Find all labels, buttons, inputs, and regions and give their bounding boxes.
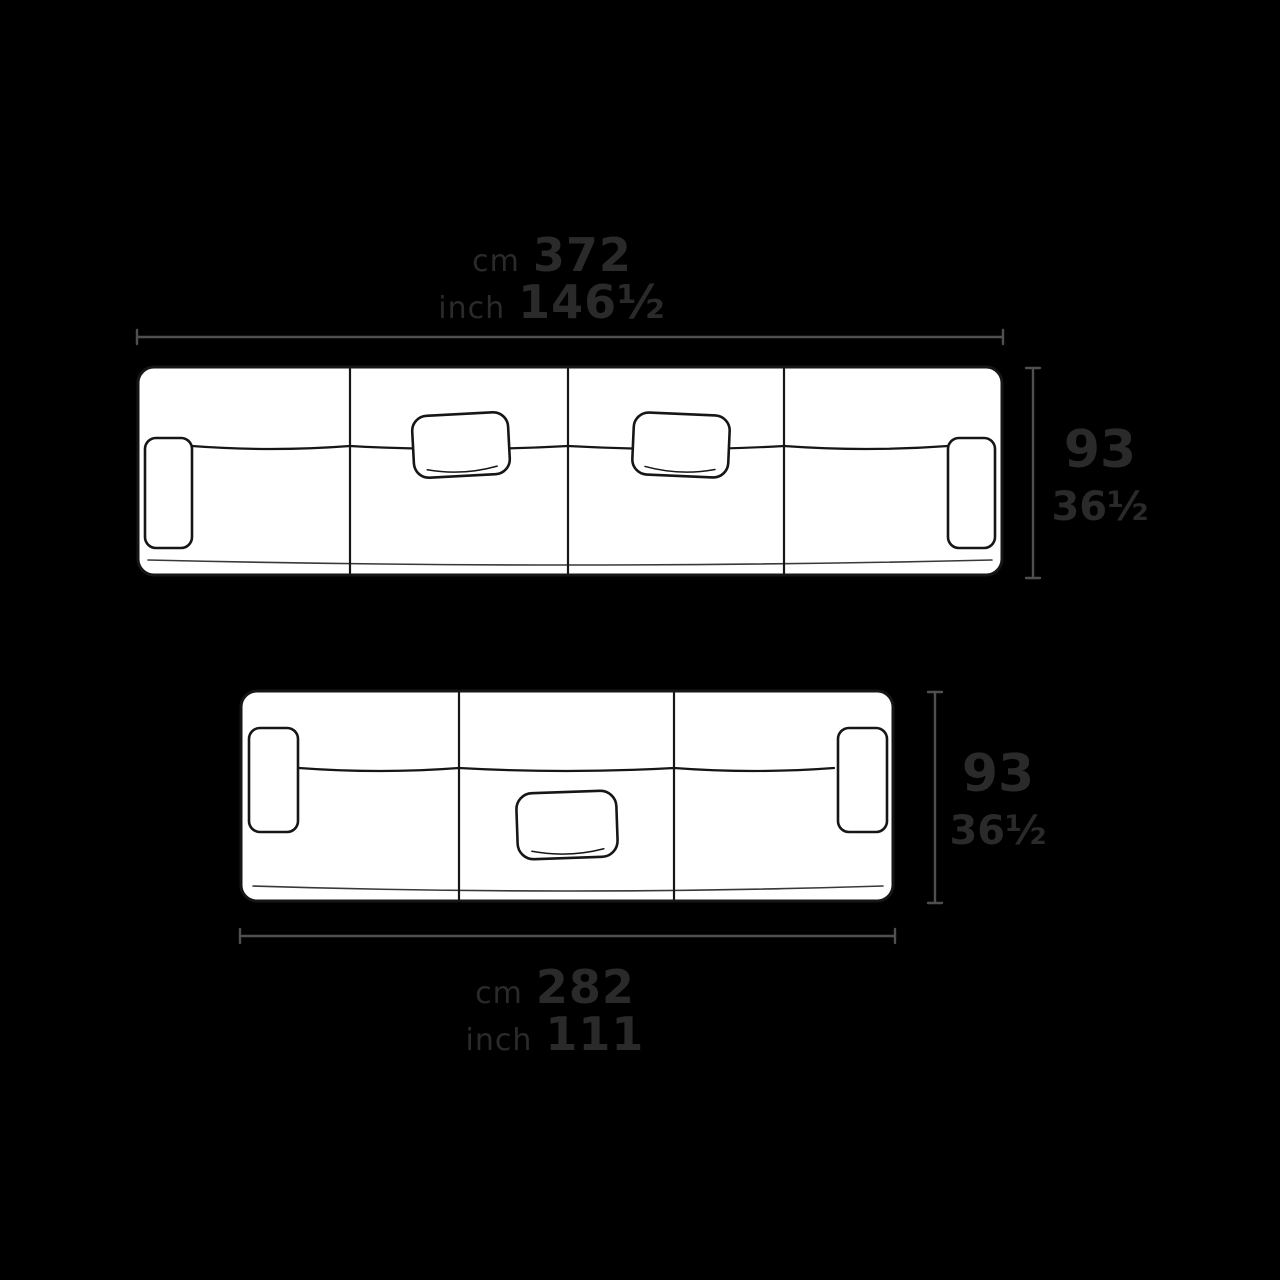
large-width-inch-value: 146½	[518, 279, 666, 326]
sofa-large-armrest-right	[948, 438, 995, 548]
sofa-large-top-view	[134, 362, 1006, 582]
sofa-large-body	[138, 367, 1002, 575]
sofa-large-armrest-left	[145, 438, 192, 548]
large-depth-inch-value: 36½	[1051, 487, 1148, 528]
large-depth-label: 93 36½	[1048, 424, 1152, 528]
small-width-inch-value: 111	[545, 1011, 644, 1058]
pillow-icon	[632, 412, 731, 478]
large-width-dimension-line	[137, 330, 1003, 344]
large-width-cm-unit: cm	[472, 247, 520, 278]
pillow-icon	[411, 412, 510, 479]
large-depth-cm-value: 93	[1064, 424, 1136, 477]
small-depth-cm-value: 93	[962, 748, 1034, 801]
small-width-cm-unit: cm	[475, 979, 523, 1010]
large-width-inch-unit: inch	[438, 294, 505, 325]
large-width-cm-value: 372	[533, 232, 632, 279]
pillow-icon	[516, 790, 618, 859]
small-width-label: cm 282 inch 111	[395, 964, 715, 1058]
sofa-small-armrest-right	[838, 728, 887, 832]
small-width-cm-value: 282	[536, 964, 635, 1011]
large-width-label: cm 372 inch 146½	[392, 232, 712, 326]
small-width-dimension-line	[240, 929, 895, 943]
diagram-canvas: cm 372 inch 146½ 93 36½ 93 36½ cm 282 in…	[0, 0, 1280, 1280]
sofa-small-top-view	[237, 686, 899, 908]
small-depth-dimension-line	[928, 692, 942, 903]
sofa-small-armrest-left	[249, 728, 298, 832]
large-depth-dimension-line	[1026, 368, 1040, 578]
small-width-inch-unit: inch	[466, 1026, 533, 1057]
dimension-lines	[0, 0, 1280, 1280]
small-depth-inch-value: 36½	[949, 811, 1046, 852]
small-depth-label: 93 36½	[946, 748, 1050, 852]
